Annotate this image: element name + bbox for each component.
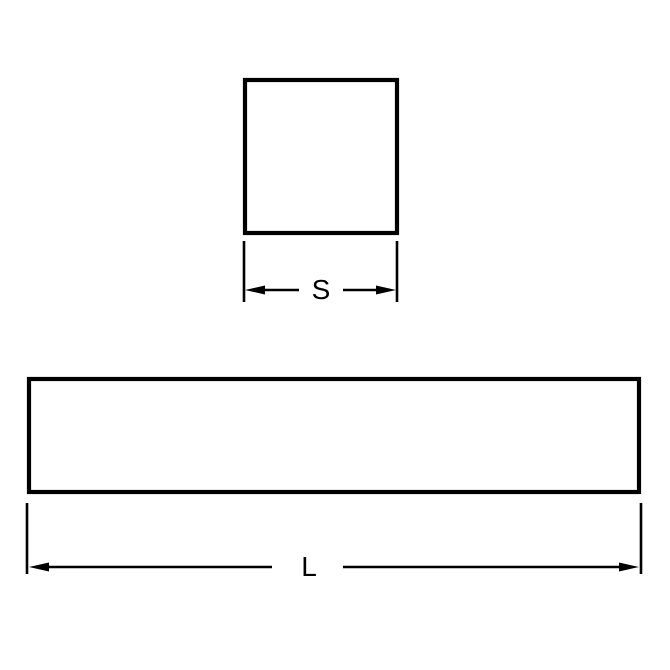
l-dimension: L <box>27 503 641 582</box>
square-end-view <box>245 80 397 233</box>
s-arrowhead-right-icon <box>376 286 396 295</box>
keystock-dimension-diagram: S L <box>0 0 670 670</box>
drawing-canvas: S L <box>0 0 670 670</box>
square-outline <box>245 80 397 233</box>
bar-side-view <box>29 379 639 492</box>
l-arrowhead-right-icon <box>619 563 639 572</box>
s-dimension-label: S <box>312 274 331 305</box>
s-arrowhead-left-icon <box>245 286 265 295</box>
l-dimension-label: L <box>301 551 317 582</box>
bar-outline <box>29 379 639 492</box>
l-arrowhead-left-icon <box>29 563 49 572</box>
s-dimension: S <box>244 241 397 305</box>
